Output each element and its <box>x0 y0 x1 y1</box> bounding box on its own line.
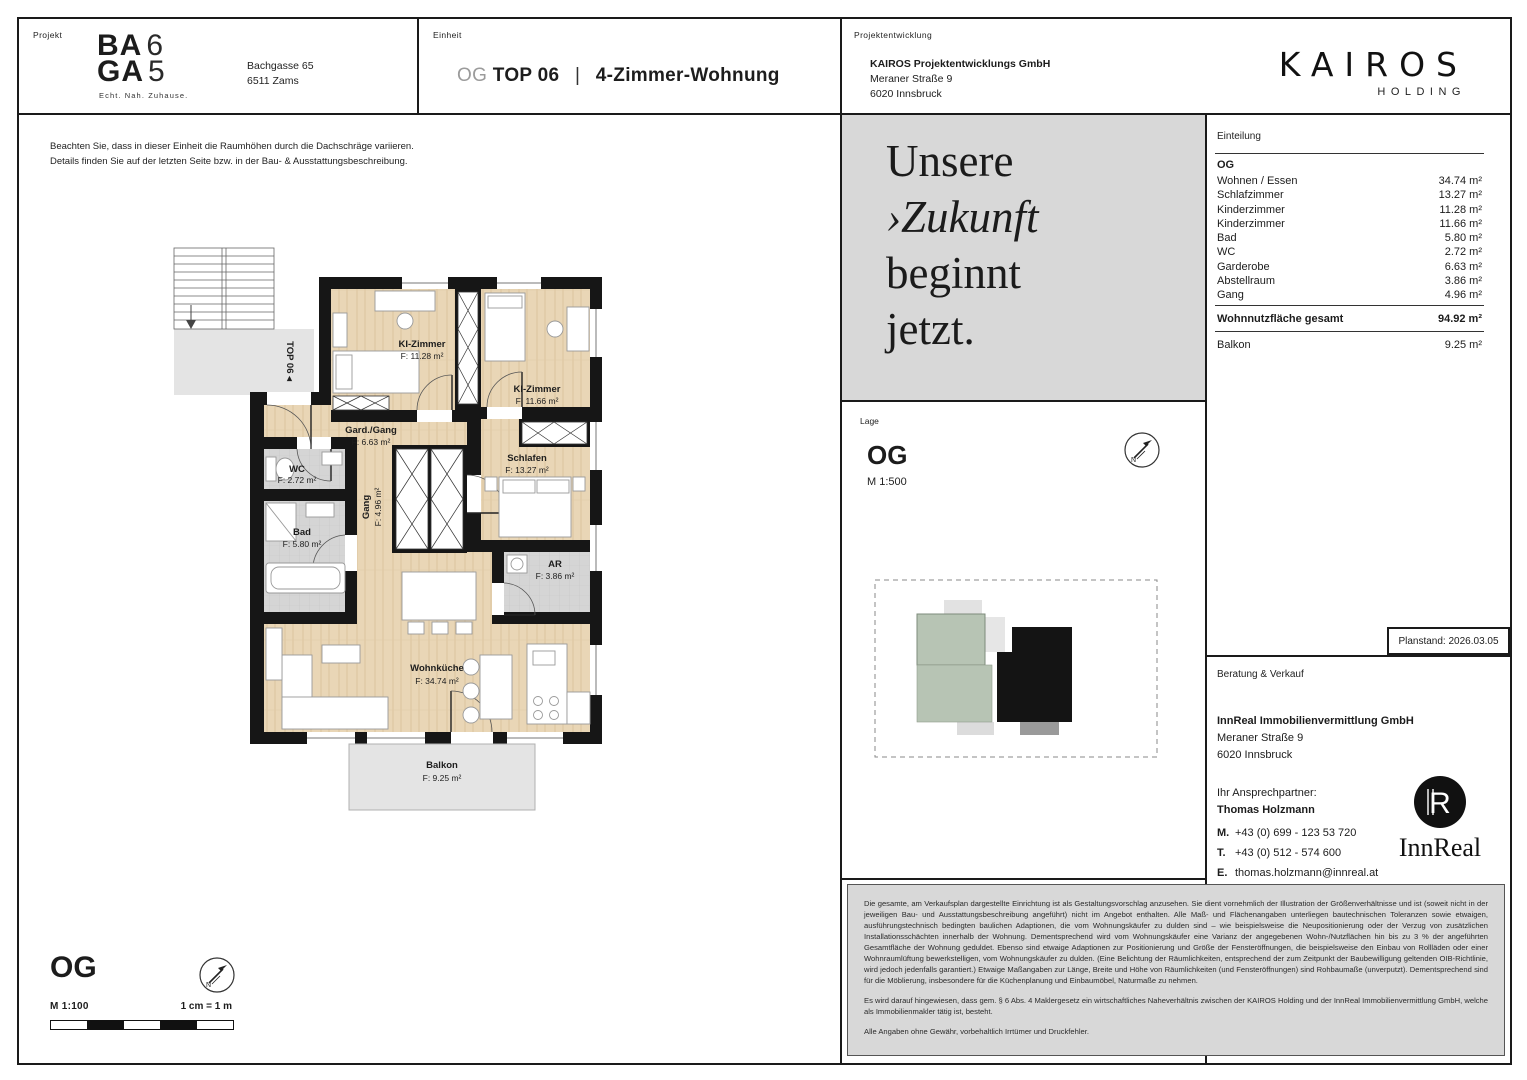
table-row: Garderobe6.63 m² <box>1217 260 1482 274</box>
site-building-black <box>997 627 1072 722</box>
svg-text:F: 13.27 m²: F: 13.27 m² <box>505 465 549 475</box>
site-building-green-upper <box>917 614 985 665</box>
svg-text:F: 9.25 m²: F: 9.25 m² <box>423 773 462 783</box>
floorplan-drawing: N TOP 06 ◂ <box>19 115 840 1063</box>
innreal-logo-icon: R <box>1413 775 1467 829</box>
project-address: Bachgasse 65 6511 Zams <box>247 59 314 89</box>
einteilung-title: Einteilung <box>1217 131 1261 142</box>
baga-tagline: Echt. Nah. Zuhause. <box>99 91 188 100</box>
table-row: WC2.72 m² <box>1217 245 1482 259</box>
site-building-green-lower <box>917 665 992 722</box>
header-project-cell: Projekt BA6 GA5 Echt. Nah. Zuhause. Bach… <box>19 19 419 113</box>
table-row: Schlafzimmer13.27 m² <box>1217 188 1482 202</box>
table-row: Bad5.80 m² <box>1217 231 1482 245</box>
svg-text:F: 4.96 m²: F: 4.96 m² <box>373 487 383 526</box>
site-plan <box>842 402 1205 878</box>
mobile-row: M.+43 (0) 699 - 123 53 720 <box>1217 823 1378 843</box>
table-row: Kinderzimmer11.66 m² <box>1217 217 1482 231</box>
room-label-gang: Gang <box>361 495 372 519</box>
svg-text:F: 3.86 m²: F: 3.86 m² <box>536 571 575 581</box>
location-panel: Lage OG M 1:500 <box>842 402 1205 880</box>
legal-disclaimer: Die gesamte, am Verkaufsplan dargestellt… <box>847 884 1505 1056</box>
divider <box>1215 331 1484 332</box>
room-label-wohnkueche: Wohnküche <box>410 663 464 674</box>
sheet-header: Projekt BA6 GA5 Echt. Nah. Zuhause. Bach… <box>19 19 1510 115</box>
balcony-area-row: Balkon9.25 m² <box>1217 339 1482 351</box>
table-row: Gang4.96 m² <box>1217 288 1482 302</box>
stair-top06-label: TOP 06 ◂ <box>284 341 295 382</box>
divider <box>1215 153 1484 154</box>
svg-text:F: 11.66 m²: F: 11.66 m² <box>516 396 559 406</box>
unit-title: OG TOP 06 | 4-Zimmer-Wohnung <box>457 65 780 87</box>
kairos-logo: KAIROS HOLDING <box>1279 45 1468 98</box>
room-label-kizimmer-1: KI-Zimmer <box>399 339 446 350</box>
room-label-schlafen: Schlafen <box>507 453 547 464</box>
brand-claim: Unsere ›Zukunft beginnt jetzt. <box>886 133 1039 357</box>
svg-text:F: 2.72 m²: F: 2.72 m² <box>278 475 317 485</box>
room-label-garderobe: Gard./Gang <box>345 425 397 436</box>
contact-person: Ihr Ansprechpartner: Thomas Holzmann <box>1217 785 1317 819</box>
email-row: E.thomas.holzmann@innreal.at <box>1217 863 1378 883</box>
room-label-ar: AR <box>548 559 562 570</box>
baga-logo: BA6 GA5 <box>97 33 166 85</box>
header-developer-cell: Projektentwicklung KAIROS Projektentwick… <box>842 19 1510 113</box>
stairwell: TOP 06 ◂ <box>174 248 314 395</box>
table-row: Kinderzimmer11.28 m² <box>1217 203 1482 217</box>
svg-text:F: 34.74 m²: F: 34.74 m² <box>415 676 459 686</box>
svg-text:F: 6.63 m²: F: 6.63 m² <box>352 437 391 447</box>
einteilung-floor: OG <box>1217 159 1234 171</box>
table-row: Wohnen / Essen34.74 m² <box>1217 174 1482 188</box>
plan-date-badge: Planstand: 2026.03.05 <box>1387 627 1510 655</box>
project-label: Projekt <box>33 30 62 40</box>
sales-label: Beratung & Verkauf <box>1217 669 1304 680</box>
developer-address: KAIROS Projektentwicklungs GmbH Meraner … <box>870 57 1050 102</box>
svg-text:F: 5.80 m²: F: 5.80 m² <box>283 539 322 549</box>
sales-company-address: InnReal Immobilienvermittlung GmbH Meran… <box>1217 713 1414 764</box>
header-unit-cell: Einheit OG TOP 06 | 4-Zimmer-Wohnung <box>419 19 842 113</box>
developer-label: Projektentwicklung <box>854 30 932 40</box>
room-label-wc: WC <box>289 464 305 475</box>
room-label-balkon: Balkon <box>426 760 458 771</box>
contact-details: M.+43 (0) 699 - 123 53 720 T.+43 (0) 512… <box>1217 823 1378 883</box>
table-row: Abstellraum3.86 m² <box>1217 274 1482 288</box>
svg-text:F: 11.28 m²: F: 11.28 m² <box>401 351 444 361</box>
room-label-kizimmer-2: KI-Zimmer <box>514 384 561 395</box>
plan-sheet: Projekt BA6 GA5 Echt. Nah. Zuhause. Bach… <box>17 17 1512 1065</box>
total-area-row: Wohnnutzfläche gesamt94.92 m² <box>1217 313 1482 325</box>
floorplan-panel: Beachten Sie, dass in dieser Einheit die… <box>19 115 842 1063</box>
innreal-wordmark: InnReal <box>1370 833 1510 863</box>
einteilung-table: Wohnen / Essen34.74 m² Schlafzimmer13.27… <box>1217 174 1482 303</box>
divider <box>1207 655 1510 657</box>
divider <box>1215 305 1484 306</box>
room-label-bad: Bad <box>293 527 311 538</box>
claim-panel: Unsere ›Zukunft beginnt jetzt. <box>842 115 1205 402</box>
unit-label: Einheit <box>433 30 462 40</box>
phone-row: T.+43 (0) 512 - 574 600 <box>1217 843 1378 863</box>
